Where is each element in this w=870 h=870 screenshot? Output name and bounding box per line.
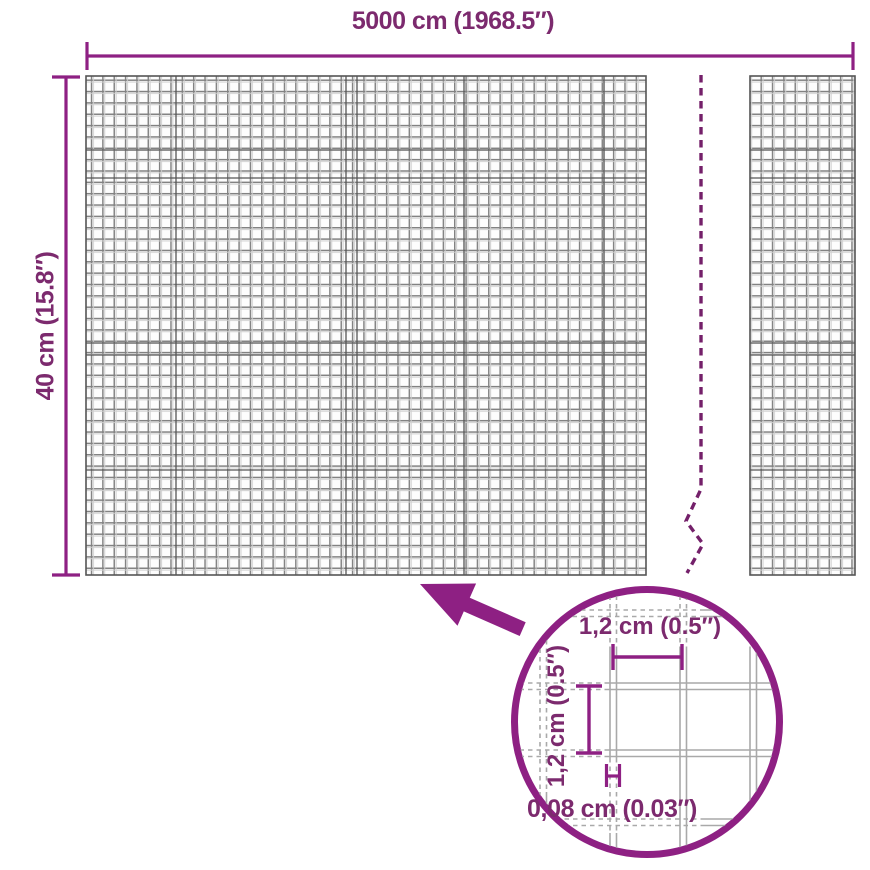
svg-text:1,2 cm (0.5″): 1,2 cm (0.5″) [543, 645, 570, 787]
svg-text:0,08 cm (0.03″): 0,08 cm (0.03″) [527, 795, 697, 823]
svg-text:40 cm (15.8″): 40 cm (15.8″) [32, 252, 60, 401]
svg-text:1,2 cm (0.5″): 1,2 cm (0.5″) [579, 613, 721, 640]
svg-text:5000 cm (1968.5″): 5000 cm (1968.5″) [352, 7, 554, 35]
